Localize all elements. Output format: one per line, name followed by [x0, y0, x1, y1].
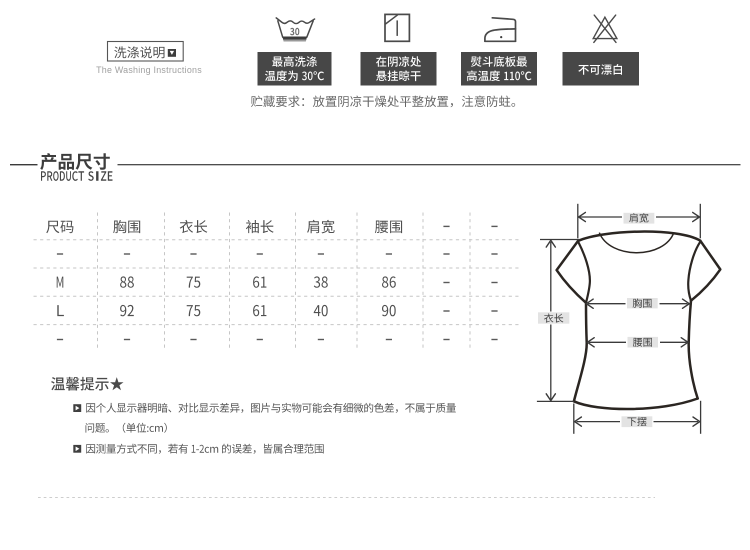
svg-text:The Washing Instructions: The Washing Instructions — [96, 65, 202, 75]
